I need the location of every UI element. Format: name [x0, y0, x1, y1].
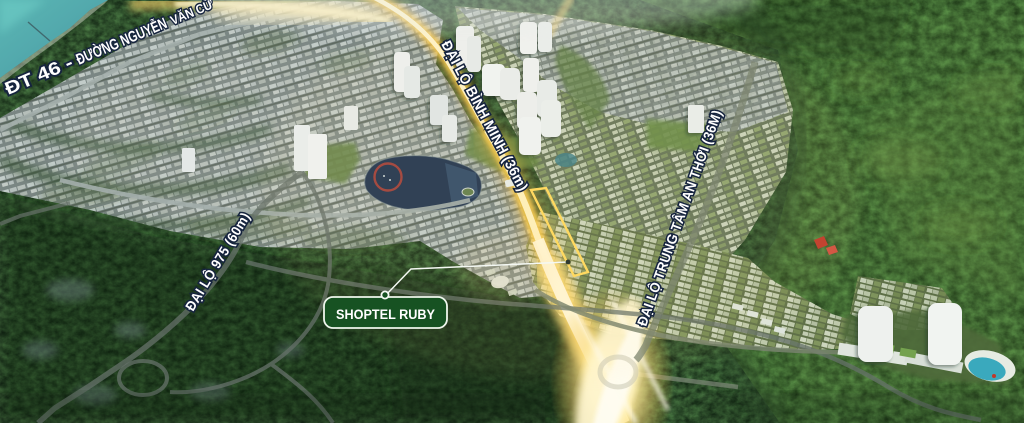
svg-text:SHOPTEL RUBY: SHOPTEL RUBY	[336, 307, 435, 322]
